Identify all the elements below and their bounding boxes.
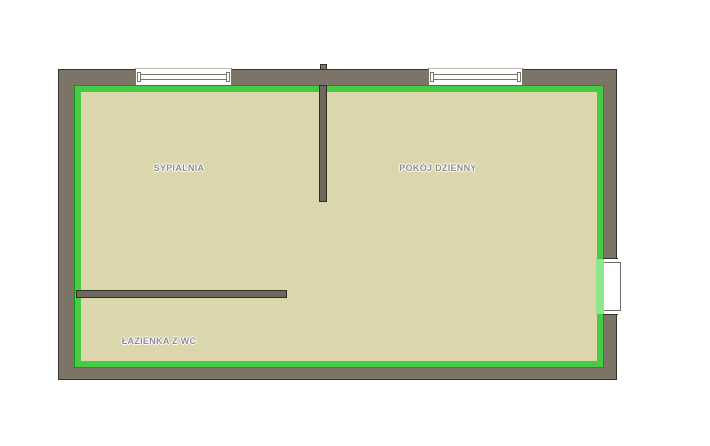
interior-wall-vertical	[319, 85, 327, 202]
window-1	[135, 68, 232, 85]
room-label-lazienka-z-wc: ŁAZIENKA Z WC	[122, 336, 197, 346]
door-threshold	[596, 259, 604, 314]
window-pane	[138, 74, 229, 80]
window-pane	[431, 74, 520, 80]
interior-wall-top-tab	[320, 64, 327, 70]
door-frame	[604, 262, 621, 311]
floor-plan: SYPIALNIA POKÓJ DZIENNY ŁAZIENKA Z WC	[0, 0, 710, 446]
window-frame-cap	[430, 72, 434, 82]
window-2	[428, 68, 523, 85]
interior-wall-horizontal	[76, 290, 287, 298]
room-label-pokoj-dzienny: POKÓJ DZIENNY	[399, 163, 476, 173]
window-frame-cap	[517, 72, 521, 82]
window-frame-cap	[137, 72, 141, 82]
window-frame-cap	[226, 72, 230, 82]
room-label-sypialnia: SYPIALNIA	[154, 163, 205, 173]
floor-area	[81, 92, 597, 361]
